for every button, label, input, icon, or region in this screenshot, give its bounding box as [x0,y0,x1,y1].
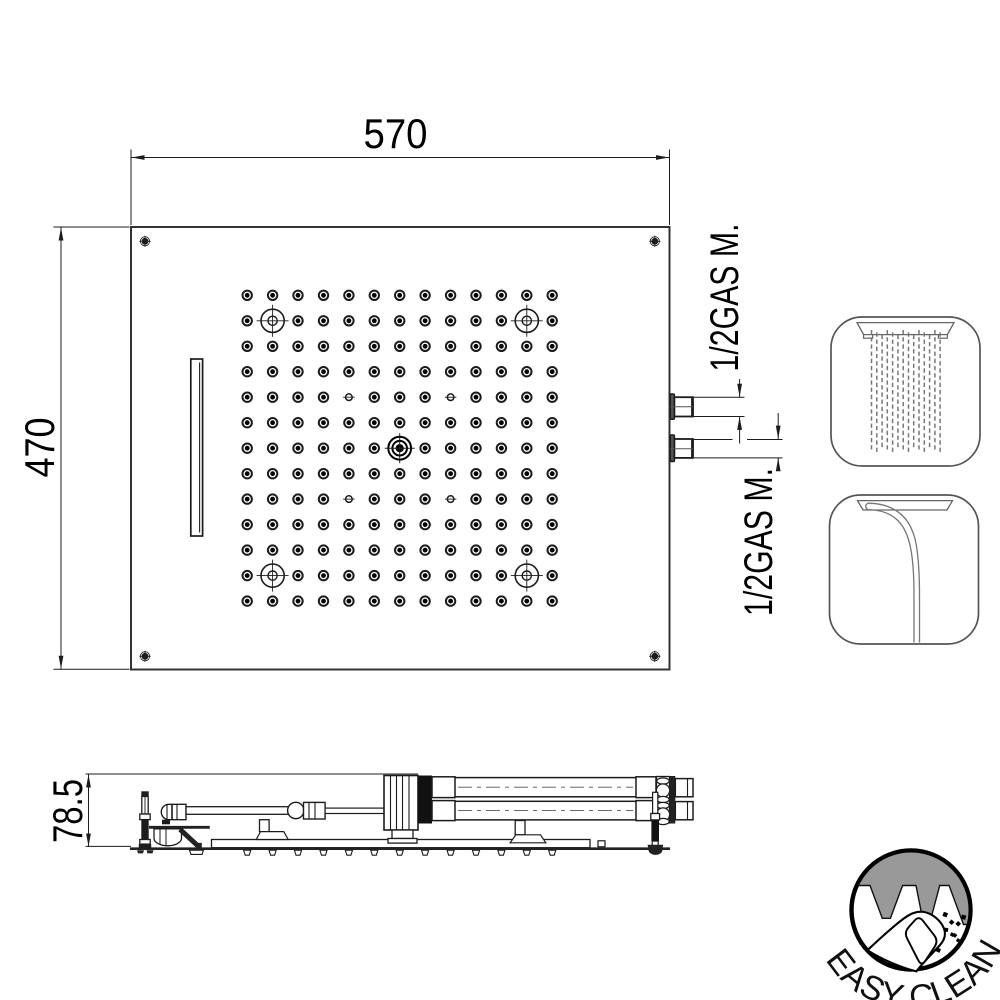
svg-text:470: 470 [16,418,63,478]
svg-text:1/2GAS M.: 1/2GAS M. [703,224,747,372]
svg-text:1/2GAS M.: 1/2GAS M. [737,468,781,616]
svg-text:78.5: 78.5 [44,779,91,843]
svg-text:570: 570 [364,110,428,157]
